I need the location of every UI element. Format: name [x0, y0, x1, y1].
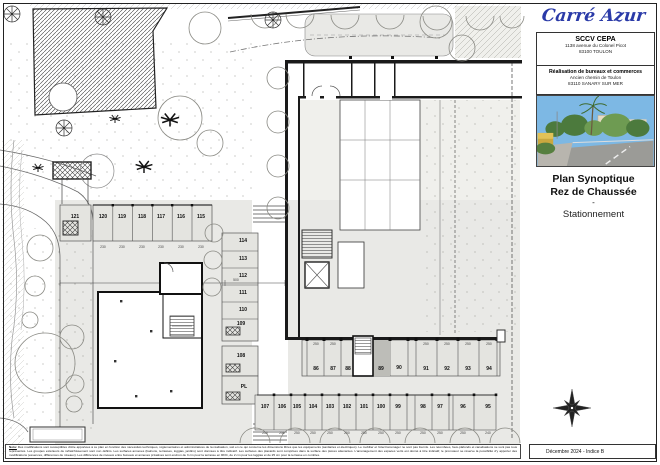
- dimension-label: 250: [313, 342, 319, 346]
- dimension-label: 250: [262, 431, 268, 435]
- dimension-label: 250: [444, 342, 450, 346]
- client-address-line2: 83100 TOULON: [537, 49, 654, 55]
- notes-box: Nota: Des modifications sont susceptible…: [5, 444, 521, 459]
- parking-space-label: 111: [239, 290, 247, 296]
- parking-space-label: 106: [278, 404, 286, 410]
- drawing-sheet: 1211201191181171161151141131121111101091…: [0, 0, 660, 465]
- parking-space-label: 110: [239, 307, 247, 313]
- dimension-label: 250: [378, 431, 384, 435]
- parking-space-label: 114: [239, 238, 247, 244]
- dimension-label: 250: [486, 342, 492, 346]
- dimension-label: 250: [395, 431, 401, 435]
- parking-space-label: 100: [377, 404, 385, 410]
- parking-space-label: 108: [237, 353, 245, 359]
- dimension-label: 230: [198, 245, 204, 249]
- parking-space-label: 88: [345, 366, 351, 372]
- parking-space-label: 93: [465, 366, 471, 372]
- parking-space-label: 119: [118, 214, 126, 220]
- parking-space-label: 90: [396, 365, 402, 371]
- parking-space-label: 89: [378, 366, 384, 372]
- parking-space-label: 99: [395, 404, 401, 410]
- site-photo: [536, 95, 655, 167]
- dimension-label: 250: [420, 431, 426, 435]
- client-info-box: SCCV CEPA 1138 avenue du Colonel Picot 8…: [536, 32, 655, 66]
- parking-space-label: 105: [293, 404, 301, 410]
- dimension-label: 250: [465, 342, 471, 346]
- parking-space-label: 101: [360, 404, 368, 410]
- site-photo-image: [537, 96, 654, 166]
- parking-space-label: 112: [239, 273, 247, 279]
- parking-space-label: 91: [423, 366, 429, 372]
- company-logo: Carré Azur: [526, 6, 660, 26]
- dimension-label: 250: [361, 431, 367, 435]
- parking-space-label: 102: [343, 404, 351, 410]
- drawing-subtitle: Stationnement: [527, 208, 660, 221]
- parking-space-label: 118: [138, 214, 146, 220]
- project-address-line2: 83110 SANARY SUR MER: [537, 81, 654, 87]
- dimension-label: 500: [233, 278, 239, 282]
- parking-space-label: 115: [197, 214, 205, 220]
- parking-space-label: 120: [99, 214, 107, 220]
- dimension-label: 250: [294, 431, 300, 435]
- parking-space-label: 103: [326, 404, 334, 410]
- dimension-label: 250: [423, 342, 429, 346]
- parking-space-label: 98: [420, 404, 426, 410]
- drawing-title-line1: Plan Synoptique: [527, 173, 660, 186]
- parking-space-label: 107: [261, 404, 269, 410]
- plan-labels-layer: 1211201191181171161151141131121111101091…: [0, 0, 530, 465]
- parking-space-label: 96: [460, 404, 466, 410]
- dimension-label: 250: [327, 431, 333, 435]
- dimension-label: 250: [279, 431, 285, 435]
- parking-space-label: 116: [177, 214, 185, 220]
- dimension-label: 250: [437, 431, 443, 435]
- dimension-label: 250: [330, 342, 336, 346]
- dimension-label: 250: [310, 431, 316, 435]
- dimension-label: 230: [178, 245, 184, 249]
- dimension-label: 250: [460, 431, 466, 435]
- parking-space-label: 117: [157, 214, 165, 220]
- parking-space-label: 113: [239, 256, 247, 262]
- dimension-label: 250: [344, 431, 350, 435]
- dimension-label: 230: [100, 245, 106, 249]
- parking-space-label: 121: [71, 214, 79, 220]
- drawing-title-separator: -: [527, 199, 660, 208]
- dimension-label: 230: [158, 245, 164, 249]
- parking-space-label: 86: [313, 366, 319, 372]
- dimension-label: 230: [119, 245, 125, 249]
- parking-space-label: 95: [485, 404, 491, 410]
- compass-rose-icon: [550, 386, 594, 430]
- project-info-box: Réalisation de bureaux et commerces Anci…: [536, 65, 655, 95]
- parking-space-label: 94: [486, 366, 492, 372]
- dimension-label: 230: [139, 245, 145, 249]
- notes-text: Des modifications sont susceptibles d'êt…: [9, 445, 517, 457]
- parking-space-label: 87: [330, 366, 336, 372]
- revision-date-box: Décembre 2024 - Indice B: [529, 444, 656, 459]
- parking-space-label: 104: [309, 404, 317, 410]
- parking-space-label: 97: [437, 404, 443, 410]
- drawing-title: Plan Synoptique Rez de Chaussée - Statio…: [527, 173, 660, 221]
- parking-space-label: 109: [237, 321, 245, 327]
- client-name: SCCV CEPA: [537, 36, 654, 43]
- parking-space-label: PL: [241, 384, 247, 390]
- parking-space-label: 92: [444, 366, 450, 372]
- dimension-label: 240: [485, 431, 491, 435]
